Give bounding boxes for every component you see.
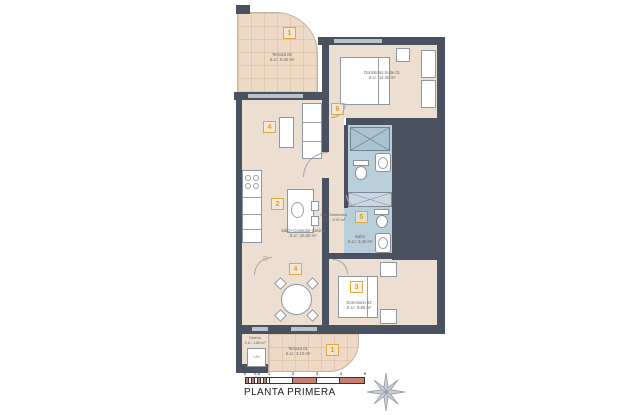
wardrobe-icon — [421, 50, 436, 78]
compass-icon — [366, 372, 406, 412]
room-number-badge-terraza01: 1 — [326, 344, 339, 356]
window — [334, 39, 382, 43]
room-label-bano: Baño S.U.: 3.40 m² — [343, 234, 377, 245]
scale-tick-label: 4 — [340, 371, 343, 376]
washer-icon: LAV — [247, 348, 266, 367]
window — [291, 327, 317, 331]
wardrobe-icon — [421, 80, 436, 108]
wall-right — [437, 37, 445, 334]
dining-table-icon — [281, 284, 312, 315]
toilet-icon — [374, 209, 389, 230]
scale-tick-label: 2 — [292, 371, 295, 376]
wall-suite-divider — [346, 118, 437, 125]
room-area: S.U.: 3.40 m² — [343, 239, 377, 244]
scale-tick-label: 3 — [316, 371, 319, 376]
room-number-badge-dining: 4 — [289, 263, 302, 275]
washer-label: LAV — [248, 355, 265, 359]
scale-tick-label: 5 — [364, 371, 367, 376]
wall-dorm02-top — [329, 253, 437, 259]
scale-tick-label: 0.5 — [254, 371, 260, 376]
room-number-badge-dorm02: 3 — [350, 281, 363, 293]
room-number-badge-bano: 5 — [355, 211, 368, 223]
sofa-icon — [302, 103, 322, 159]
room-label-dorm02: Dormitorio 02 S.U.: 8.80 m² — [336, 300, 382, 311]
door-letter: D — [263, 256, 268, 263]
room-number-badge-suite: 6 — [331, 103, 344, 115]
room-label-hall: Hall-Distribuidor S.U.: 3.50 m² — [314, 213, 354, 223]
room-area: S.U.: 3.10 m² — [280, 351, 316, 356]
room-number-badge-terraza02: 1 — [283, 27, 296, 39]
wall — [236, 5, 250, 14]
shower-icon — [350, 127, 390, 151]
scale-tick-label: 0 — [244, 371, 247, 376]
plan-title: PLANTA PRIMERA — [244, 387, 336, 398]
wardrobe-icon — [380, 309, 397, 324]
room-number-badge-kitchen: 2 — [271, 198, 284, 210]
scale-bar — [245, 377, 365, 384]
toilet-icon — [353, 160, 369, 183]
room-area: S.U.: 26.30 m² — [272, 233, 334, 238]
wardrobe-icon — [380, 262, 397, 277]
room-number-badge-living: 4 — [263, 121, 276, 133]
wall-mid — [322, 37, 329, 152]
room-label-terraza02: Terraza 02 S.U.: 8.40 m² — [252, 52, 312, 63]
wall-core — [392, 125, 437, 260]
room-label-salon: Salón-Comedor-Cocina S.U.: 26.30 m² — [272, 228, 334, 239]
stool-icon — [311, 201, 319, 211]
kitchen-island-icon — [287, 189, 314, 233]
room-label-suite: Dormitorio Suite 01 S.U.: 14.30 m² — [350, 70, 414, 81]
scale-tick-label: 1 — [268, 371, 271, 376]
bed-icon — [340, 57, 390, 105]
room-area: S.U.: 14.30 m² — [350, 75, 414, 80]
room-area: S.U.: 8.40 m² — [252, 57, 312, 62]
window — [248, 94, 303, 98]
floor-plan-canvas: LAV 1 6 4 2 4 5 3 1 Terraza 02 S.U.: 8.4… — [0, 0, 620, 415]
room-label-terraza01: Terraza 01 S.U.: 3.10 m² — [280, 346, 316, 357]
sink-icon — [375, 233, 391, 253]
room-label-galeria: Galería S.U.: 1.60 m² — [240, 336, 270, 345]
window — [252, 327, 268, 331]
wall-mid — [322, 178, 329, 325]
room-area: S.U.: 1.60 m² — [240, 341, 270, 346]
room-area: S.U.: 8.80 m² — [336, 305, 382, 310]
room-area: S.U.: 3.50 m² — [314, 218, 354, 223]
coffee-table-icon — [279, 117, 294, 148]
nightstand-icon — [396, 48, 410, 62]
kitchen-counter-icon — [242, 170, 262, 243]
sink-icon — [375, 153, 391, 172]
